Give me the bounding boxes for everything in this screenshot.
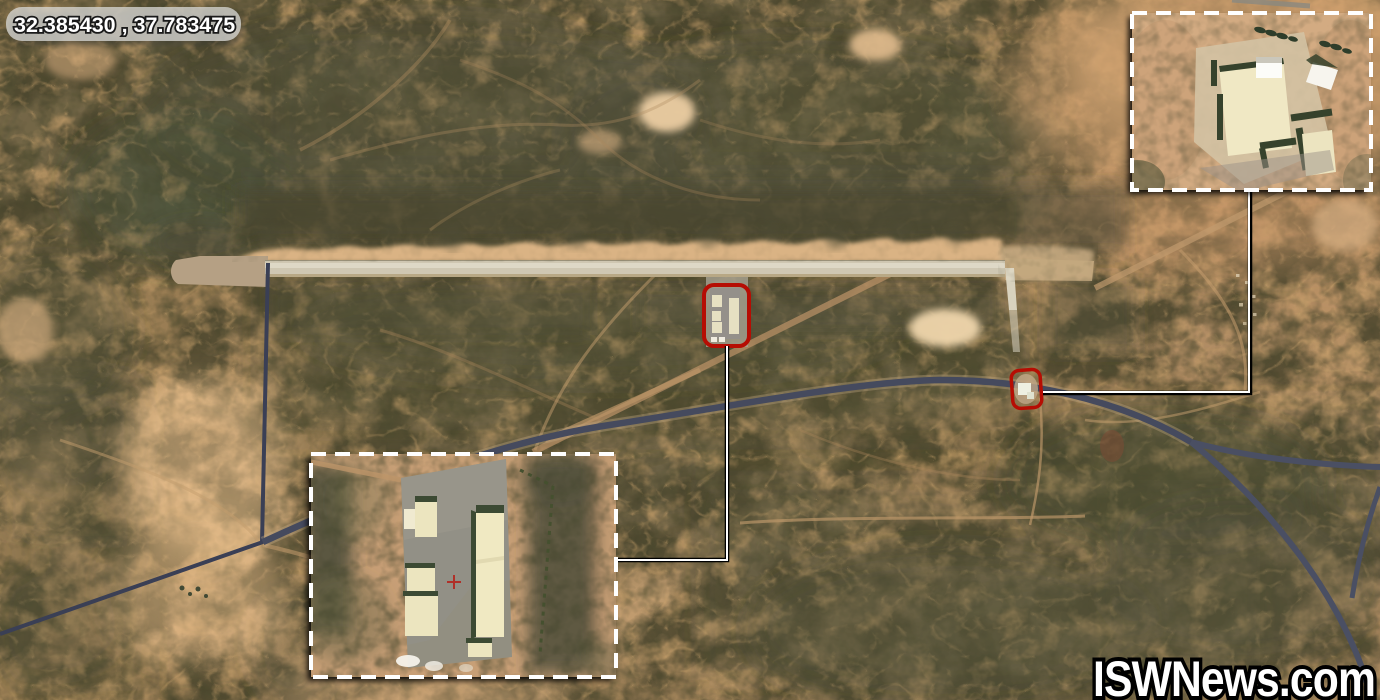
svg-text:32.385430 , 37.783475: 32.385430 , 37.783475 (14, 13, 235, 37)
svg-text:ISWNews.com: ISWNews.com (1093, 651, 1375, 700)
